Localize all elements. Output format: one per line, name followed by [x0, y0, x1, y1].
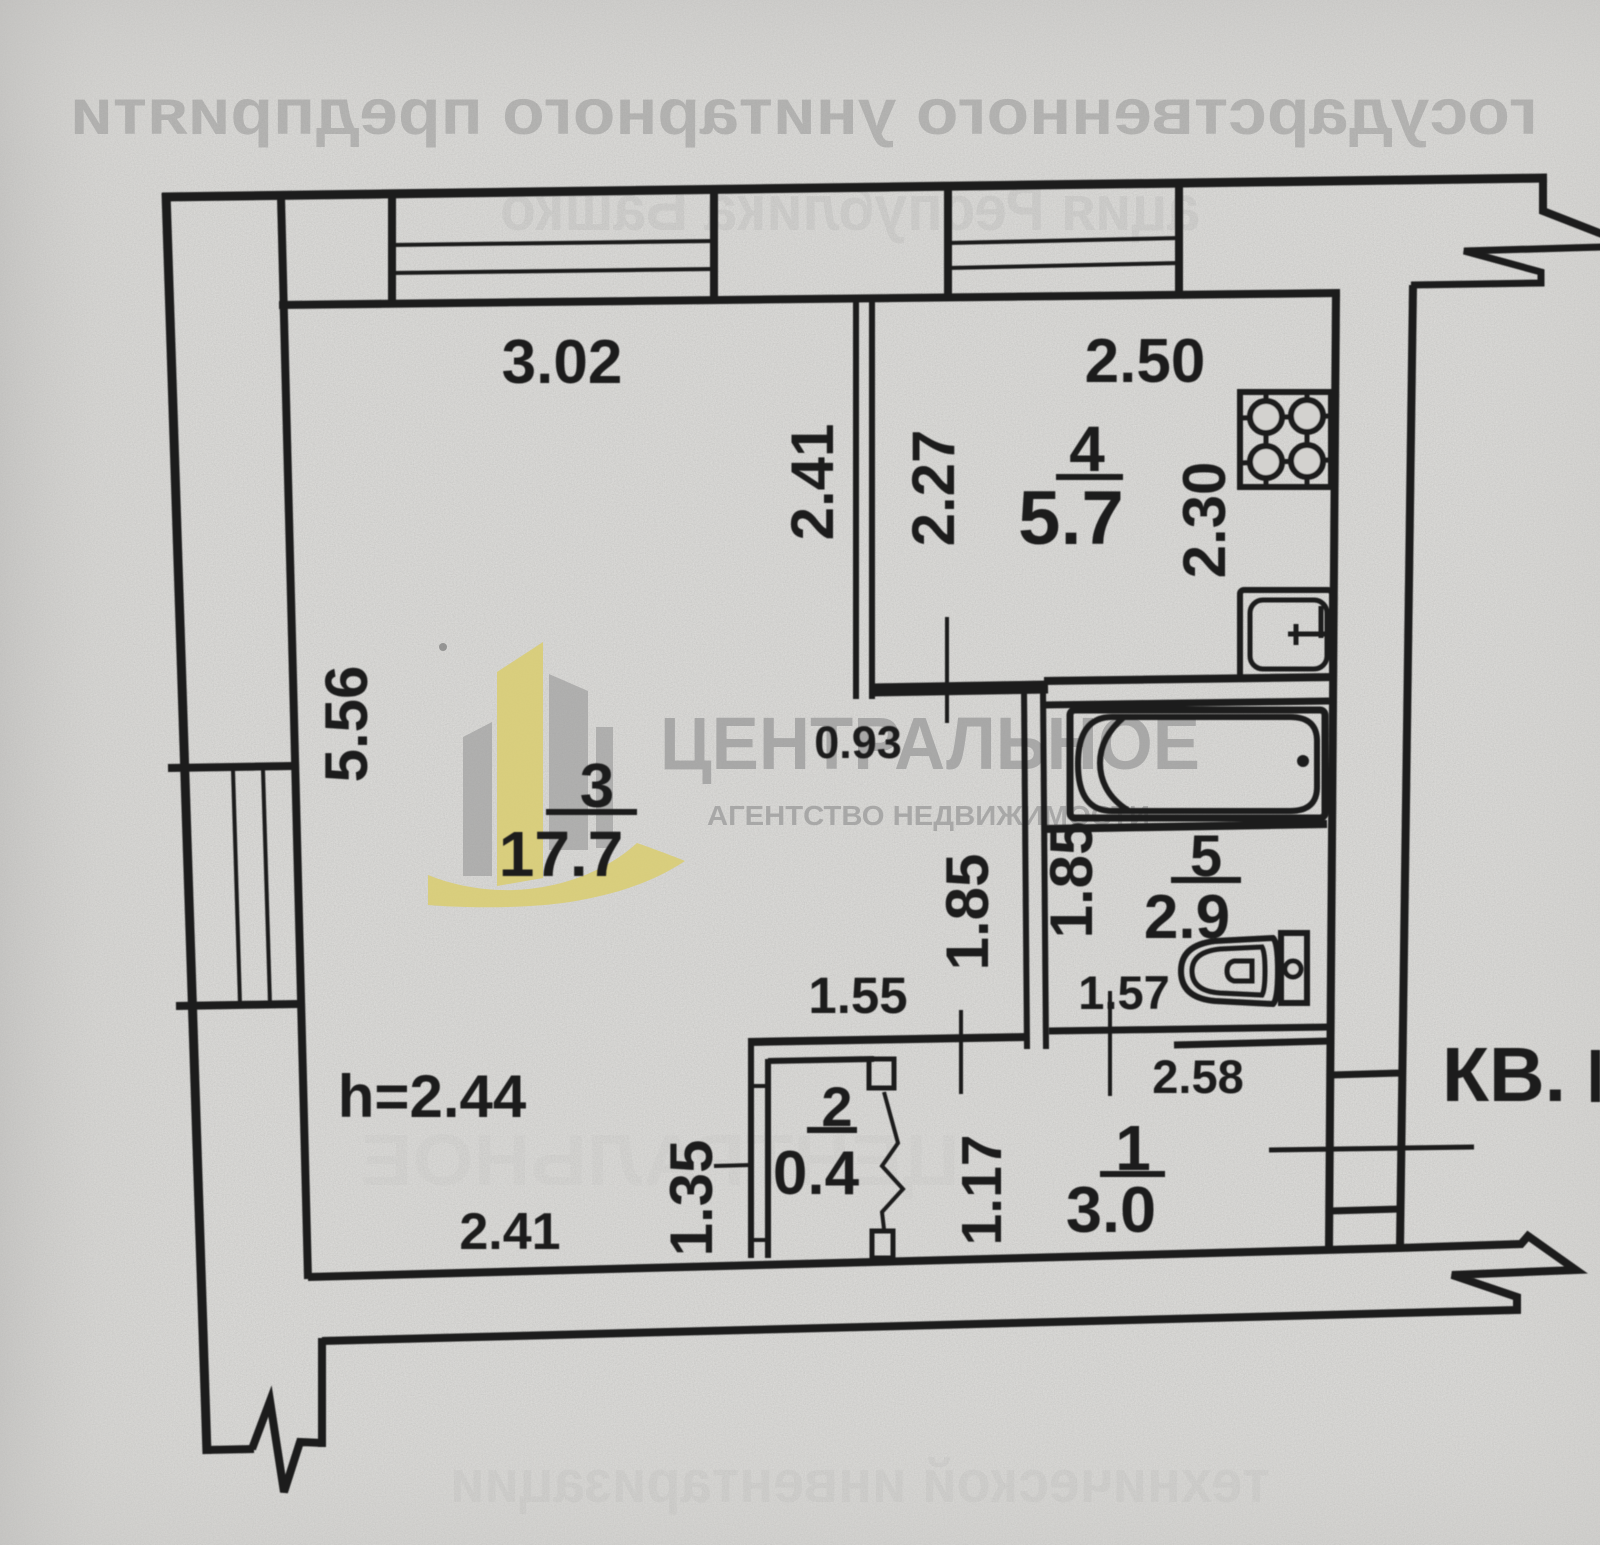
svg-text:2.30: 2.30 [1171, 462, 1238, 579]
svg-text:1.85: 1.85 [934, 854, 1001, 971]
svg-text:5.7: 5.7 [1018, 476, 1124, 561]
svg-text:0.93: 0.93 [814, 717, 902, 768]
svg-text:0.4: 0.4 [773, 1139, 860, 1208]
svg-text:2.41: 2.41 [779, 424, 846, 541]
svg-text:1.85: 1.85 [1038, 822, 1105, 939]
svg-text:технической инвентаризации: технической инвентаризации [450, 1448, 1270, 1515]
svg-text:3.0: 3.0 [1066, 1173, 1156, 1246]
svg-text:h=2.44: h=2.44 [338, 1063, 527, 1130]
svg-text:17.7: 17.7 [499, 818, 624, 890]
svg-text:1.35: 1.35 [658, 1140, 725, 1257]
svg-text:2.58: 2.58 [1152, 1050, 1243, 1103]
svg-text:3.02: 3.02 [502, 328, 623, 397]
svg-text:2.27: 2.27 [900, 430, 967, 547]
svg-text:5.56: 5.56 [313, 666, 380, 783]
svg-text:государственного унитарного пр: государственного унитарного предприяти [70, 75, 1538, 148]
svg-text:2.9: 2.9 [1144, 883, 1230, 952]
svg-text:2.41: 2.41 [459, 1203, 560, 1261]
svg-text:1.17: 1.17 [950, 1135, 1014, 1246]
svg-text:1.57: 1.57 [1078, 966, 1169, 1019]
svg-text:2.50: 2.50 [1085, 327, 1206, 396]
svg-text:КВ.: КВ. [1442, 1032, 1566, 1118]
svg-text:1.55: 1.55 [808, 967, 907, 1024]
